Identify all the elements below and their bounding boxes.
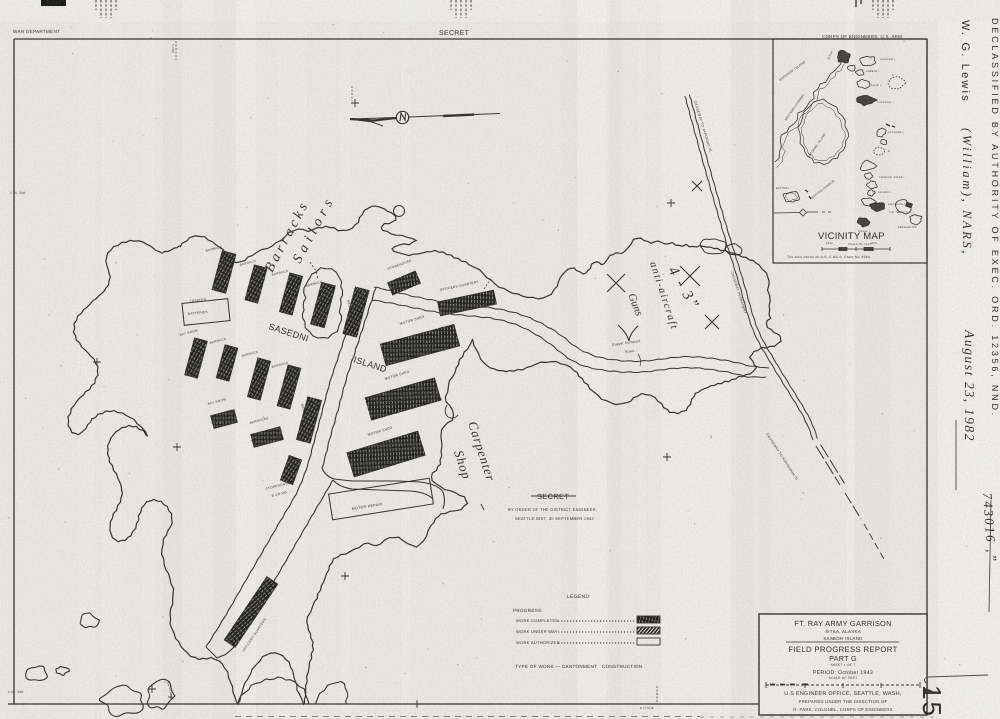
svg-text:PART G: PART G	[829, 654, 857, 663]
svg-text:HARBOR I: HARBOR I	[866, 70, 880, 73]
svg-text:ALEUTSKI I: ALEUTSKI I	[880, 58, 895, 61]
svg-text:W. G. Lewis: W. G. Lewis	[959, 20, 971, 103]
svg-text:WAR DEPARTMENT: WAR DEPARTMENT	[13, 29, 60, 34]
svg-text:P: P	[892, 74, 894, 77]
svg-text:2000: 2000	[870, 242, 877, 245]
svg-text:(William), NARS,: (William), NARS,	[960, 128, 974, 256]
svg-text:FT. RAY ARMY GARRISON: FT. RAY ARMY GARRISON	[794, 619, 891, 628]
svg-text:THE TWINS, N.D. I: THE TWINS, N.D. I	[889, 211, 914, 214]
svg-text:PROGRESS:: PROGRESS:	[513, 608, 543, 613]
svg-text:ALICE I: ALICE I	[871, 84, 881, 87]
svg-text:PREPARED UNDER THE DIRECTION O: PREPARED UNDER THE DIRECTION OF	[799, 699, 888, 704]
svg-text:SEATTLE DIST, 30 SEPTEMBER 194: SEATTLE DIST, 30 SEPTEMBER 1942	[515, 516, 595, 521]
svg-text:BATTERY: BATTERY	[776, 187, 789, 190]
svg-text:WORK UNDER WAY: WORK UNDER WAY	[516, 629, 558, 634]
svg-text:KIRUSHKIN I: KIRUSHKIN I	[888, 203, 905, 206]
svg-text:E.H.SHE: E.H.SHE	[640, 706, 654, 710]
svg-text:1 IN. 500: 1 IN. 500	[10, 191, 26, 195]
svg-text:R. PARK, COLONEL, CORPS OF ENG: R. PARK, COLONEL, CORPS OF ENGINEERS	[793, 707, 893, 712]
svg-text:SITKA, ALASKA: SITKA, ALASKA	[825, 629, 861, 634]
svg-text:LEGEND: LEGEND	[567, 594, 589, 600]
svg-text:1.: 1.	[440, 397, 444, 401]
svg-text:SECRET: SECRET	[439, 30, 470, 37]
svg-text:CORPS OF ENGINEERS, U.S. ARM: CORPS OF ENGINEERS, U.S. ARM	[822, 34, 902, 39]
svg-text:WORK AUTHORIZED: WORK AUTHORIZED	[516, 640, 560, 645]
svg-text:FIELD PROGRESS REPORT: FIELD PROGRESS REPORT	[788, 645, 897, 654]
svg-text:DECLASSIFIED BY AUTHORITY OF E: DECLASSIFIED BY AUTHORITY OF EXEC. ORD. …	[990, 18, 1000, 418]
svg-text:SHEET 1 OF 7: SHEET 1 OF 7	[831, 663, 856, 667]
svg-text:1000: 1000	[826, 242, 833, 245]
svg-text:D: D	[888, 150, 890, 153]
svg-text:The area shown on U.S. C.&: The area shown on U.S. C.&G.S. Chart No.…	[787, 255, 871, 259]
svg-text:BREAKWATER: BREAKWATER	[898, 226, 917, 229]
svg-text:SCALE OF FEET: SCALE OF FEET	[829, 676, 858, 680]
svg-text:SASEOH ISLAND: SASEOH ISLAND	[823, 636, 862, 641]
svg-text:HEYWARD I: HEYWARD I	[888, 131, 904, 134]
svg-text:BY ORDER OF THE DISTRICT ENGIN: BY ORDER OF THE DISTRICT ENGINEER,	[508, 507, 597, 512]
svg-text:WORK COMPLETED: WORK COMPLETED	[516, 618, 559, 623]
svg-text:15: 15	[917, 685, 947, 718]
svg-text:GOLBPH I: GOLBPH I	[878, 191, 891, 194]
svg-text:TYPE OF WORK — CANTONMENT CO: TYPE OF WORK — CANTONMENT CONSTRUCTION	[515, 664, 643, 669]
svg-text:TWIRLING STAGE I: TWIRLING STAGE I	[879, 176, 905, 179]
svg-text:August 23, 1982: August 23, 1982	[962, 329, 977, 442]
svg-text:1: 1	[710, 435, 712, 439]
svg-text:1 IN. 200: 1 IN. 200	[8, 690, 24, 694]
svg-text:VICINITY MAP: VICINITY MAP	[818, 231, 885, 242]
svg-text:SCALE OF FEET: SCALE OF FEET	[848, 243, 872, 246]
svg-text:U.S ENGINEER OFFICE, SEATTLE,: U.S ENGINEER OFFICE, SEATTLE, WASH,	[784, 691, 902, 697]
svg-text:CHARCOAL I: CHARCOAL I	[877, 101, 894, 104]
svg-text:N PRE: N PRE	[171, 44, 174, 53]
